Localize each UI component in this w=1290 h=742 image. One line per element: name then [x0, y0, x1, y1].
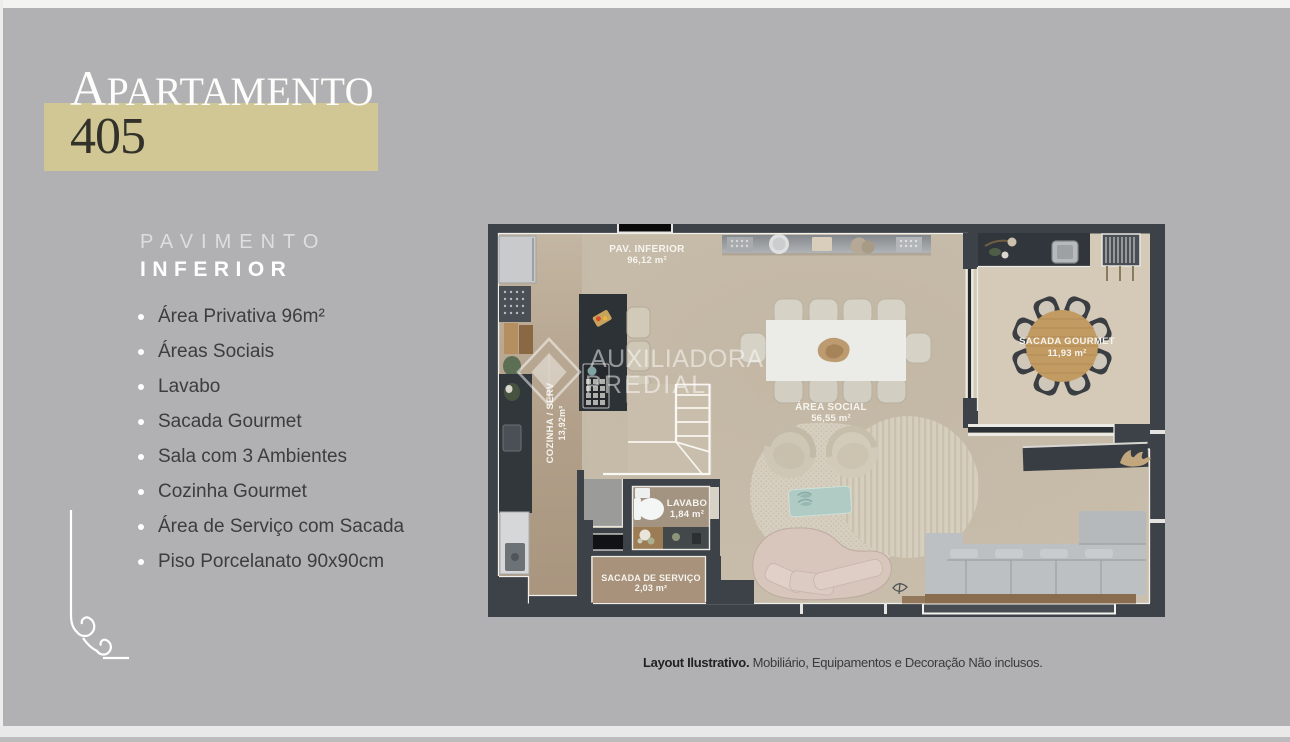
svg-text:96,12 m²: 96,12 m² — [627, 255, 667, 266]
svg-text:SACADA DE SERVIÇO: SACADA DE SERVIÇO — [601, 573, 700, 583]
svg-text:AUXILIADORA: AUXILIADORA — [590, 345, 764, 373]
svg-text:LAVABO: LAVABO — [667, 498, 708, 509]
svg-text:SACADA GOURMET: SACADA GOURMET — [1019, 336, 1115, 347]
svg-text:2,03 m²: 2,03 m² — [635, 583, 667, 593]
svg-text:COZINHA / SERV: COZINHA / SERV — [545, 382, 556, 463]
svg-text:56,55 m²: 56,55 m² — [811, 413, 851, 424]
svg-text:11,93 m²: 11,93 m² — [1047, 348, 1086, 359]
svg-text:ÁREA SOCIAL: ÁREA SOCIAL — [795, 400, 867, 413]
svg-text:PREDIAL: PREDIAL — [585, 371, 707, 399]
svg-text:PAV. INFERIOR: PAV. INFERIOR — [609, 244, 685, 255]
svg-text:13,92m²: 13,92m² — [557, 406, 567, 441]
svg-text:1,84 m²: 1,84 m² — [670, 509, 704, 520]
